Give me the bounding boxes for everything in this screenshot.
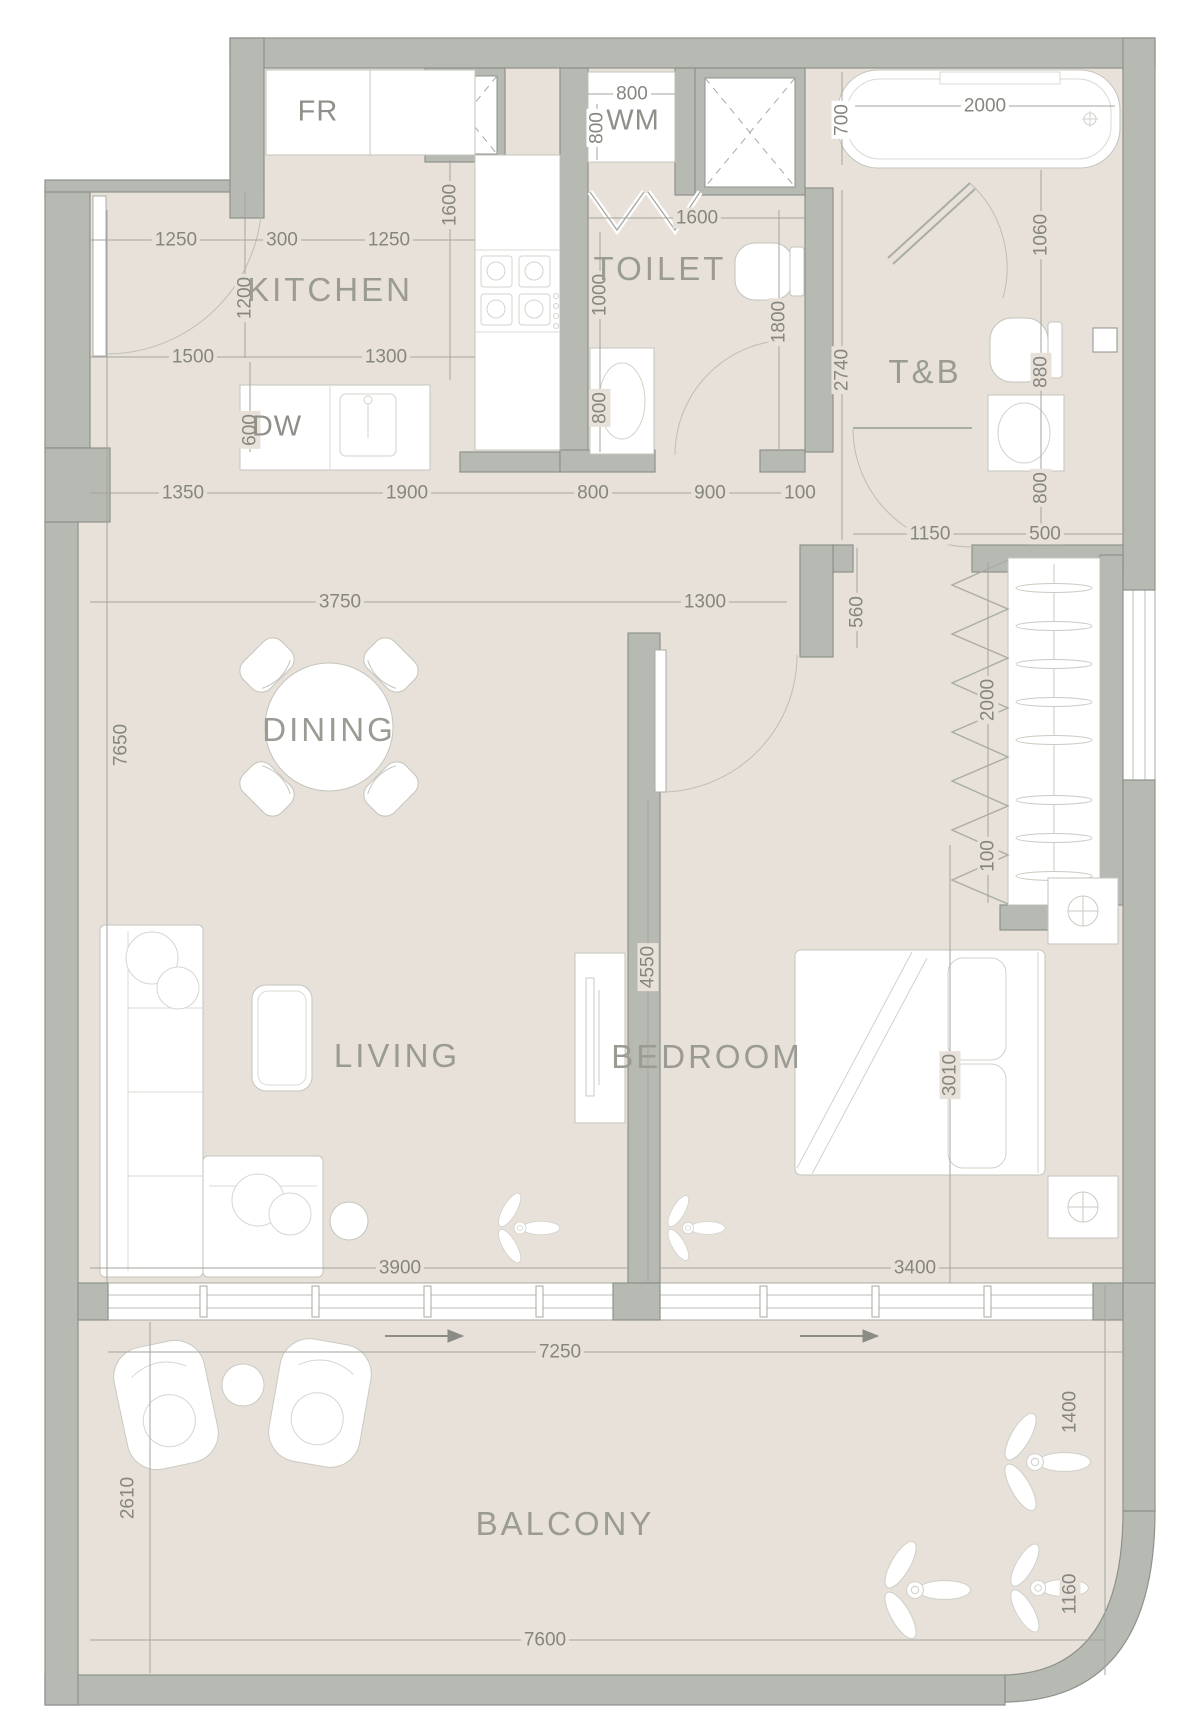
shaft-2 bbox=[705, 78, 795, 187]
nightstand-top bbox=[1048, 878, 1118, 944]
balcony-table-icon bbox=[222, 1364, 264, 1406]
balcony-window-band bbox=[78, 1283, 1123, 1320]
toilet-wc-icon bbox=[735, 243, 804, 300]
tv-console-icon bbox=[575, 953, 625, 1123]
washing-machine-closet bbox=[588, 72, 675, 162]
nightstand-bottom bbox=[1048, 1176, 1118, 1238]
kitchen-top-cabinets bbox=[266, 70, 475, 155]
tb-washbasin-icon bbox=[988, 395, 1064, 471]
kitchen-island-dw-sink bbox=[240, 385, 430, 470]
bedroom-side-window bbox=[1123, 590, 1155, 780]
pillow-icon bbox=[948, 1064, 1006, 1168]
bed-icon bbox=[795, 950, 1045, 1175]
floorplan-drawing bbox=[0, 0, 1200, 1736]
wall-box bbox=[1093, 328, 1117, 352]
coffee-table-icon bbox=[252, 985, 312, 1091]
bathtub-icon bbox=[838, 70, 1120, 168]
floorplan-canvas: 1250300125015001300800160020001350190080… bbox=[0, 0, 1200, 1736]
pillow-icon bbox=[948, 958, 1006, 1060]
dining-table-icon bbox=[265, 663, 393, 791]
tb-wc-icon bbox=[990, 318, 1062, 382]
side-table-icon bbox=[330, 1202, 368, 1240]
kitchen-counter bbox=[475, 155, 560, 450]
